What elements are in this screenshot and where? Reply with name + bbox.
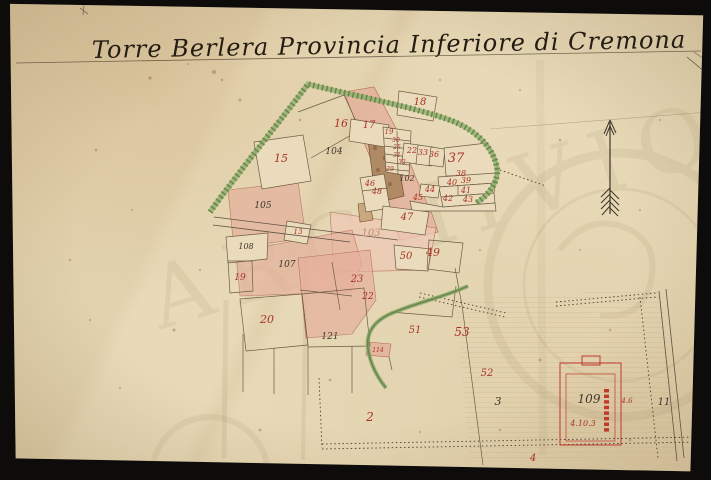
parcel-label-4.10.3: 4.10.3 <box>569 419 595 428</box>
parcel-label-37: 37 <box>448 151 465 166</box>
parcel-label-4.6: 4.6 <box>620 397 633 405</box>
parcel-label-107: 107 <box>278 260 295 270</box>
parcel-label-13: 13 <box>294 228 303 236</box>
map-title: Torre Berlera Provincia Inferiore di Cre… <box>92 26 687 64</box>
parcel-label-29: 29 <box>385 166 394 173</box>
parcel-label-23: 23 <box>350 274 364 285</box>
parcel-label-53: 53 <box>454 325 470 339</box>
parcel-label-48: 48 <box>371 187 382 196</box>
parcel-label-104: 104 <box>325 147 342 157</box>
parcel-label-20: 20 <box>259 313 274 326</box>
parcel-label-45: 45 <box>412 193 423 202</box>
parcel-label-44: 44 <box>424 185 435 194</box>
parcel-label-17: 17 <box>363 120 376 131</box>
parcel-label-42: 42 <box>442 194 453 203</box>
parcel-label-22: 22 <box>361 292 374 302</box>
parcel-label-121: 121 <box>321 332 338 342</box>
parcel-label-51: 51 <box>409 325 422 336</box>
parcel-label-47: 47 <box>400 212 414 223</box>
stamp-circle-bottom-left <box>152 417 268 480</box>
stream <box>368 286 468 388</box>
parcel-label-114: 114 <box>372 347 384 354</box>
sheet-corner-mark <box>80 5 88 15</box>
parcel-label-11: 11 <box>658 397 671 408</box>
parcel-label-2: 2 <box>365 410 374 424</box>
parcel-label-32: 32 <box>398 159 406 166</box>
parcel-label-18: 18 <box>414 97 427 108</box>
photographed-map: ARCHIVIO <box>0 0 711 480</box>
parcel-label-109: 109 <box>578 392 601 406</box>
parcel-label-15: 15 <box>274 152 288 165</box>
parcel-label-49: 49 <box>425 246 440 259</box>
parcel-label-43: 43 <box>462 195 473 204</box>
parcel-label-36: 36 <box>429 150 439 159</box>
parcel-label-50: 50 <box>400 251 413 262</box>
parcel-label-40: 40 <box>446 178 457 187</box>
parcel-label-31: 31 <box>393 152 401 159</box>
parcel-label-39: 39 <box>461 176 471 185</box>
parcel-label-41: 41 <box>460 186 471 195</box>
parcel-label-4: 4 <box>529 453 536 464</box>
parcel-label-19: 19 <box>385 128 394 136</box>
parcel-label-25: 25 <box>392 144 401 151</box>
parcel-label-102: 102 <box>399 174 414 183</box>
parcel-label-19: 19 <box>234 273 246 283</box>
parcel-label-3: 3 <box>495 395 502 408</box>
map-canvas: ARCHIVIO <box>0 0 711 480</box>
parcel-label-22: 22 <box>406 146 417 155</box>
parcel-label-108: 108 <box>238 242 253 251</box>
parcel-label-30: 30 <box>392 137 400 144</box>
parcel-label-33: 33 <box>418 148 428 157</box>
parcel-label-105: 105 <box>254 201 271 211</box>
parcel-label-16: 16 <box>334 117 348 130</box>
parcel-label-52: 52 <box>481 368 494 379</box>
parcel-label-103: 103 <box>361 228 380 239</box>
